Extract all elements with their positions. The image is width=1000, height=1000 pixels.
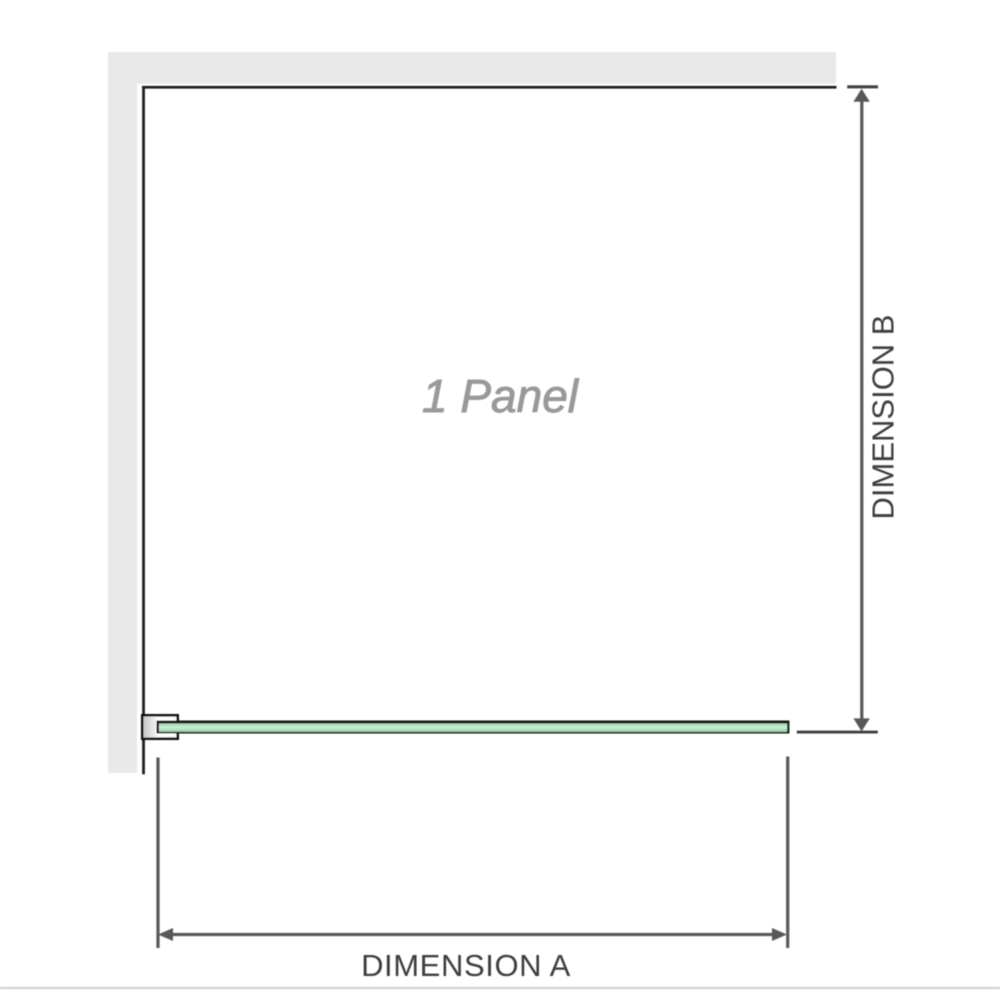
svg-text:1 Panel: 1 Panel — [422, 370, 580, 422]
svg-text:DIMENSION B: DIMENSION B — [866, 315, 901, 520]
svg-text:DIMENSION A: DIMENSION A — [361, 948, 571, 983]
